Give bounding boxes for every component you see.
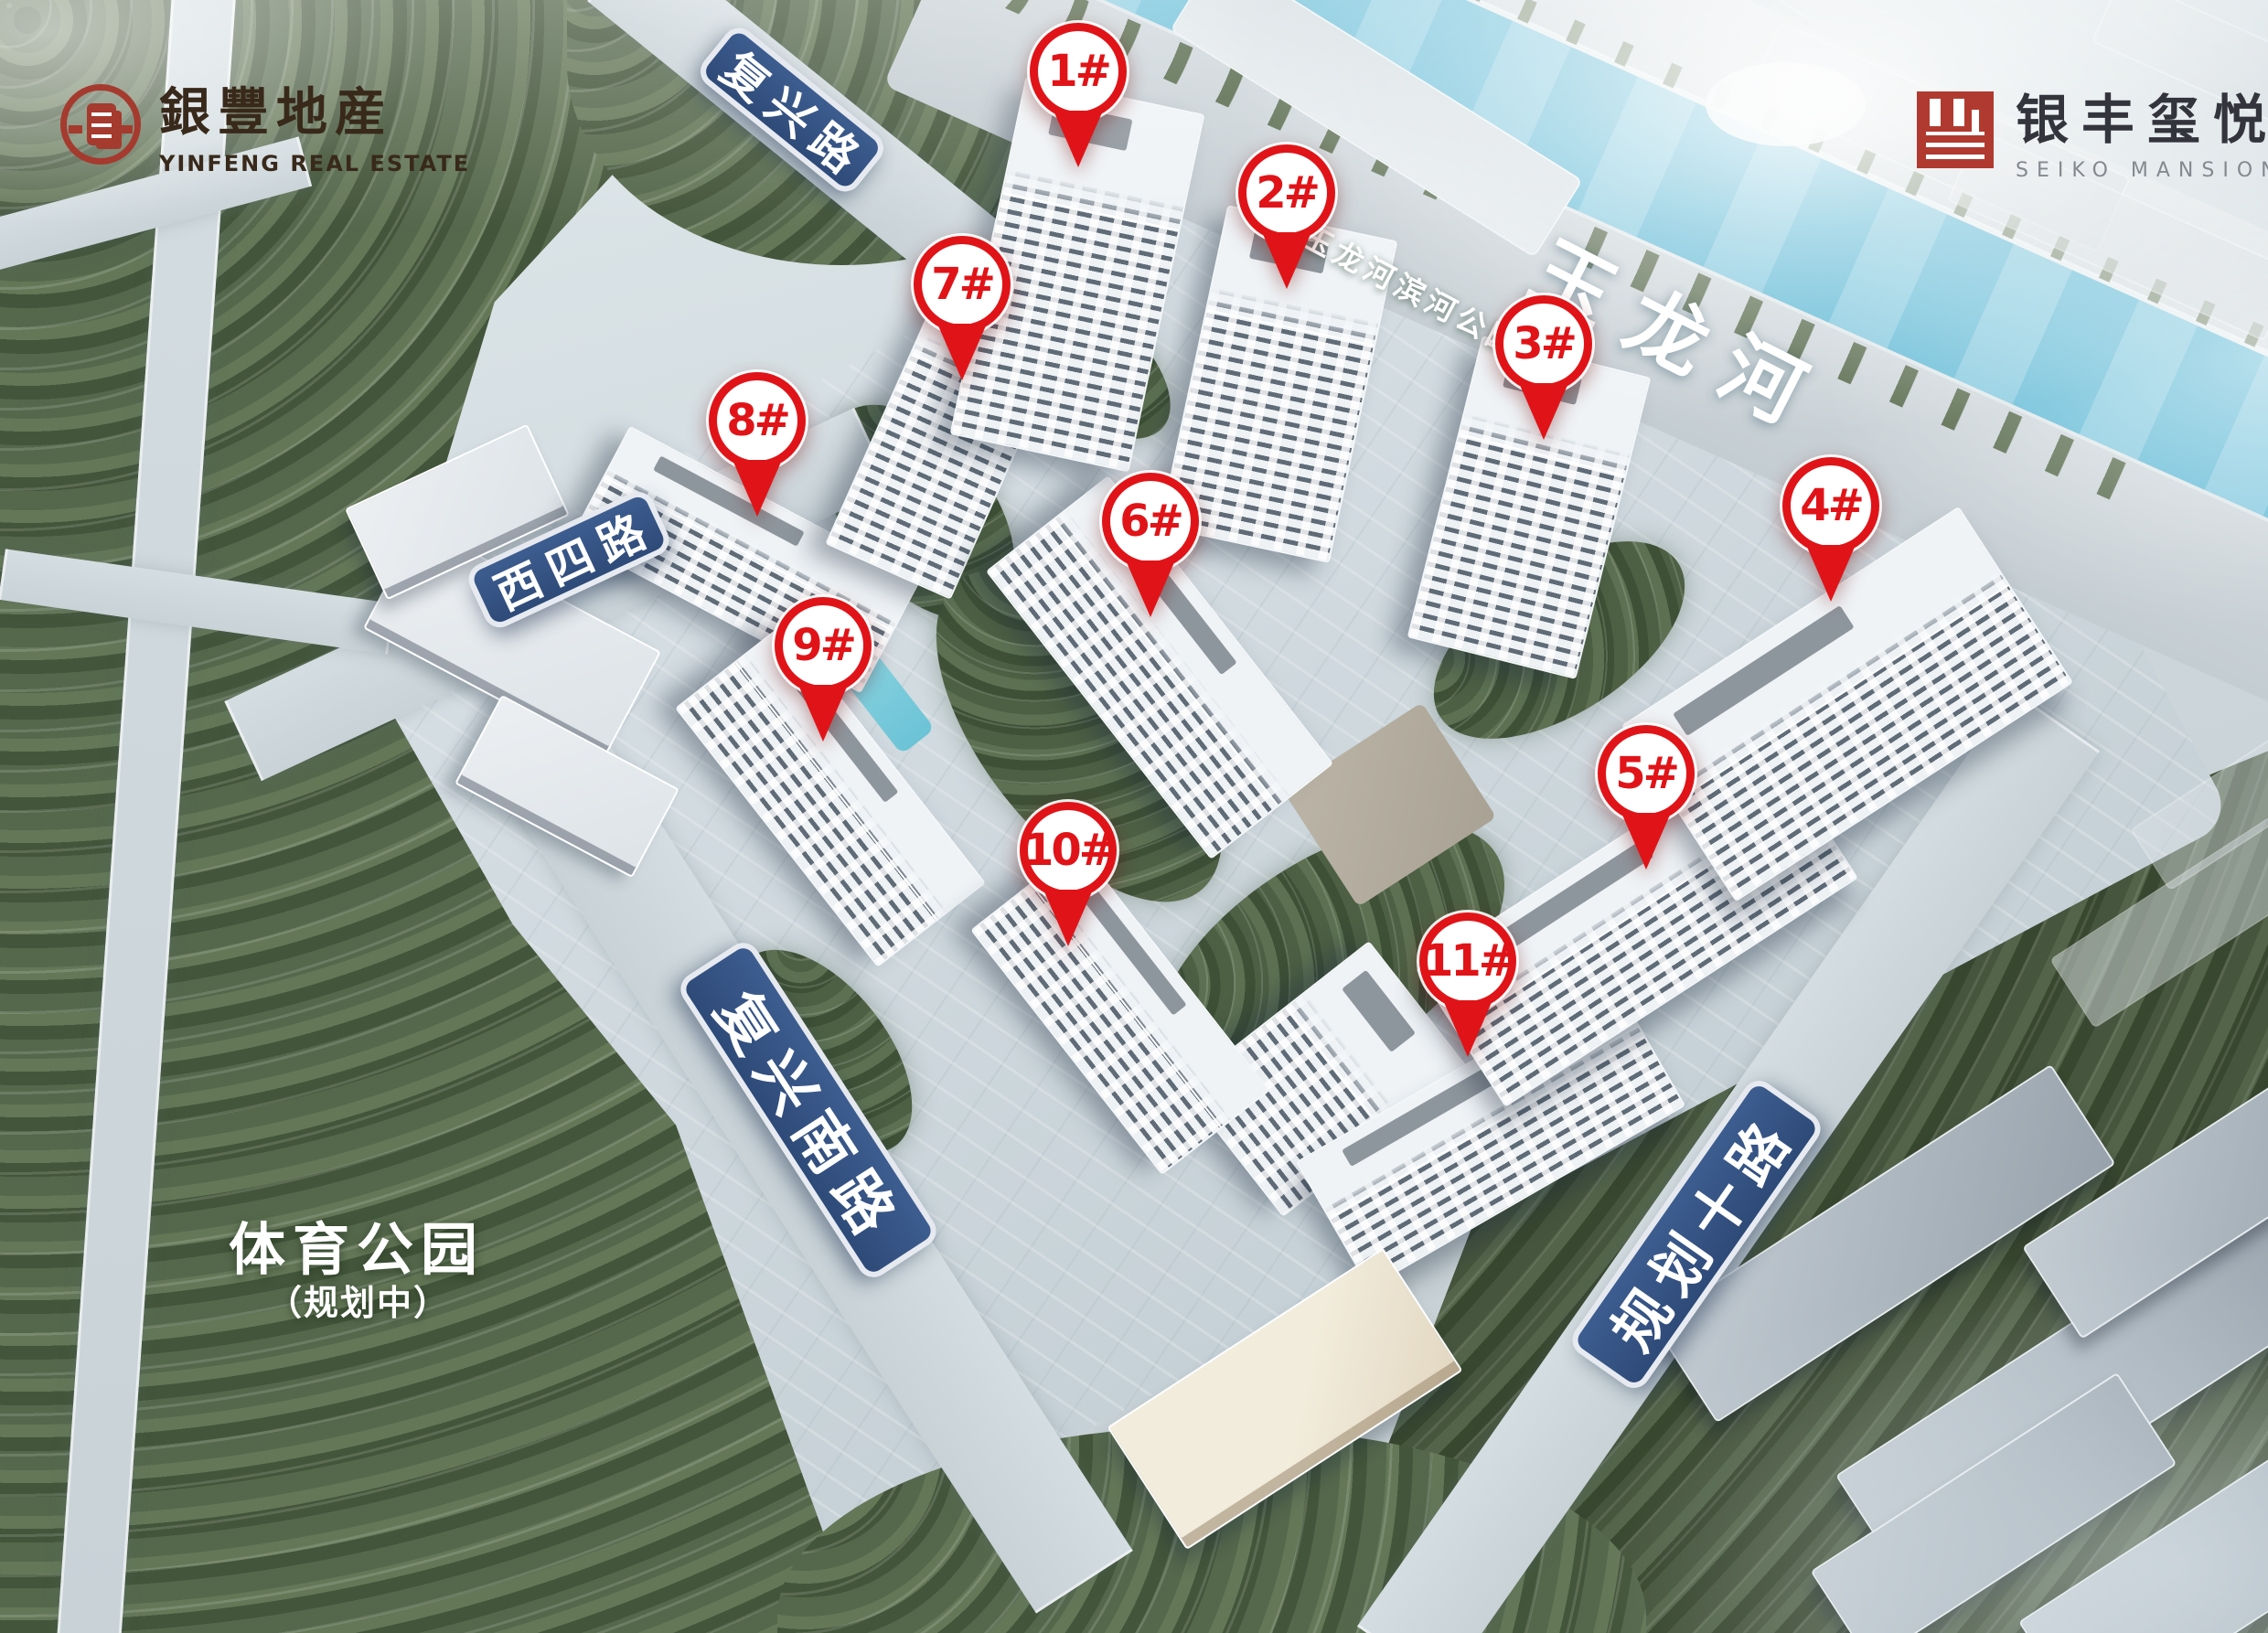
seal-bar-left — [69, 125, 82, 133]
building-pin-2[interactable]: 2# — [1238, 144, 1335, 289]
pin-tail — [937, 324, 987, 380]
pin-tail — [733, 460, 782, 517]
pin-tail — [1621, 813, 1671, 870]
pin-tail — [1519, 383, 1568, 440]
building-pin-3[interactable]: 3# — [1495, 295, 1592, 440]
building-pin-11[interactable]: 11# — [1419, 913, 1516, 1057]
developer-name-cn: 銀豐地産 — [159, 71, 470, 145]
building-pin-4[interactable]: 4# — [1782, 457, 1879, 602]
developer-name-en: YINFENG REAL ESTATE — [159, 151, 470, 176]
pin-tail — [1043, 890, 1093, 946]
pin-tail — [1126, 560, 1175, 617]
building-pin-5[interactable]: 5# — [1598, 725, 1695, 870]
pin-tail — [1262, 232, 1311, 289]
pin-tail — [798, 685, 848, 742]
building-pin-8[interactable]: 8# — [709, 372, 806, 517]
sports-park-status-label: （规划中） — [267, 1275, 450, 1325]
developer-logo: 銀豐地産 YINFENG REAL ESTATE — [60, 71, 470, 176]
building-pin-6[interactable]: 6# — [1102, 473, 1199, 617]
project-logo: 银丰玺悦 SEIKO MANSION — [1917, 77, 2268, 182]
building-pin-7[interactable]: 7# — [914, 236, 1011, 380]
building-pin-10[interactable]: 10# — [1020, 802, 1117, 946]
seal-bar-right — [119, 125, 133, 133]
pin-tail — [1054, 111, 1103, 167]
building-pin-1[interactable]: 1# — [1030, 23, 1127, 167]
xi-square-seal-icon — [1917, 91, 1994, 168]
seal-glyph — [87, 103, 116, 145]
masterplan-aerial-rendering: 复兴路 西四路 复兴南路 规划十路 玉龙河 玉龙河滨河公园 体育公园 （规划中）… — [0, 0, 2268, 1633]
project-name-cn: 银丰玺悦 — [2016, 77, 2268, 154]
sports-park-label: 体育公园 — [229, 1203, 485, 1286]
building-pin-9[interactable]: 9# — [775, 597, 872, 742]
project-name-en: SEIKO MANSION — [2016, 159, 2268, 182]
distant-pond — [1706, 62, 1866, 146]
pin-tail — [1806, 545, 1856, 602]
pin-tail — [1443, 1000, 1492, 1057]
yinfeng-circle-seal-icon — [60, 84, 141, 165]
